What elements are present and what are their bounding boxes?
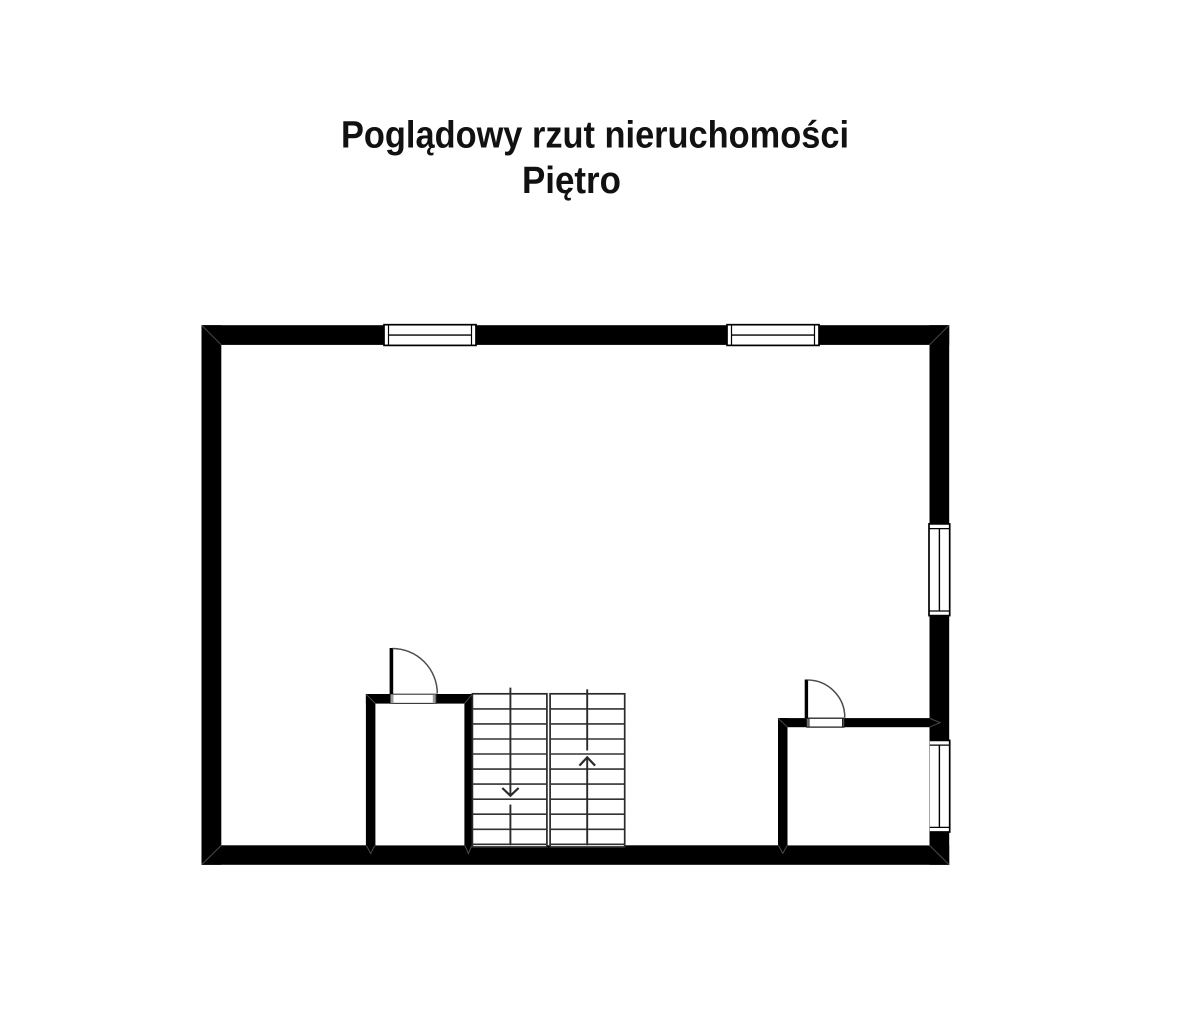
svg-text:Poglądowy rzut nieruchomości: Poglądowy rzut nieruchomości [341, 114, 849, 156]
svg-text:Piętro: Piętro [522, 160, 621, 202]
